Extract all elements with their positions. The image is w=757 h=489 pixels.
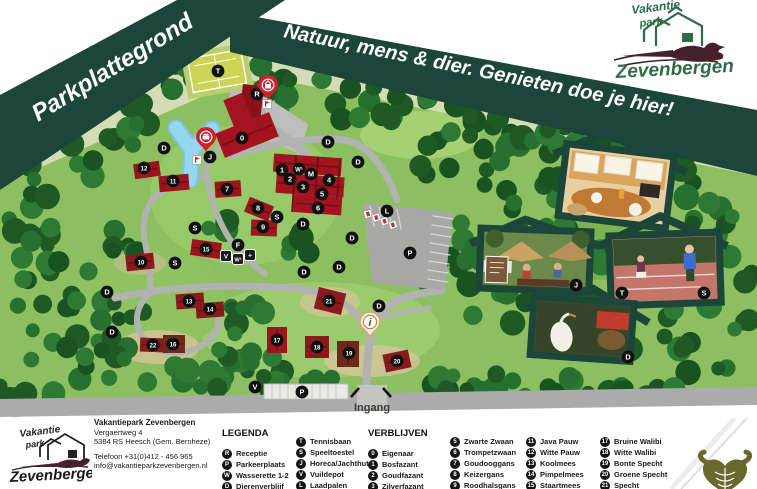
legend-key-badge: 21 bbox=[600, 481, 610, 489]
legend-key-badge: 6 bbox=[450, 448, 460, 458]
map-marker-D: D bbox=[297, 218, 310, 231]
svg-text:S: S bbox=[193, 224, 198, 233]
legend-label: Bosfazant bbox=[382, 460, 418, 469]
legend-key-badge: 3 bbox=[368, 482, 378, 489]
facility-square-V: V bbox=[221, 251, 232, 262]
map-marker-T: T bbox=[616, 287, 629, 300]
entrance-label: Ingang bbox=[354, 402, 390, 414]
svg-text:2: 2 bbox=[288, 175, 292, 184]
tree bbox=[409, 155, 431, 177]
tree bbox=[34, 184, 60, 210]
legend-label: Vuildepot bbox=[310, 470, 344, 479]
legend-item: LLaadpalen bbox=[296, 480, 369, 489]
tree bbox=[83, 150, 104, 171]
tree bbox=[48, 251, 69, 272]
map-marker-D: D bbox=[352, 156, 365, 169]
legend-item: DDierenverblijf bbox=[222, 481, 289, 489]
tree bbox=[462, 128, 478, 144]
tree bbox=[33, 295, 52, 314]
legend-key-badge: 1 bbox=[368, 460, 378, 470]
facility-square-W²: W² bbox=[233, 254, 244, 265]
tree bbox=[657, 329, 673, 345]
legend-item: 2Goudfazant bbox=[368, 470, 424, 481]
house-icon bbox=[40, 434, 84, 460]
legend-label: Trompetzwaan bbox=[464, 448, 516, 457]
legend-item: 0Eigenaar bbox=[368, 448, 424, 459]
legenda-col-2: TTennisbaanSSpeeltoestelJHoreca/Jachthut… bbox=[296, 436, 369, 489]
legend-label: Horeca/Jachthut bbox=[310, 459, 369, 468]
legend-item: 13Koolmees bbox=[526, 458, 584, 469]
svg-text:W¹: W¹ bbox=[295, 167, 303, 174]
map-marker-L: L bbox=[381, 205, 394, 218]
svg-text:3: 3 bbox=[301, 183, 305, 192]
svg-text:S: S bbox=[275, 213, 280, 222]
park-phone: Telefoon +31(0)412 - 456 965 bbox=[94, 452, 224, 462]
map-marker-4: 4 bbox=[323, 174, 336, 187]
map-marker-J: J bbox=[570, 279, 583, 292]
svg-text:R: R bbox=[254, 90, 260, 99]
map-marker-18: 18 bbox=[311, 341, 324, 354]
map-marker-22: 22 bbox=[147, 339, 160, 352]
park-email: info@vakantieparkzevenbergen.nl bbox=[94, 461, 224, 471]
tree bbox=[174, 358, 200, 384]
map-marker-17: 17 bbox=[271, 334, 284, 347]
svg-text:5: 5 bbox=[320, 190, 324, 199]
legend-key-badge: D bbox=[222, 482, 232, 489]
tree bbox=[10, 298, 26, 314]
map-marker-12: 12 bbox=[138, 162, 151, 175]
svg-text:V: V bbox=[224, 253, 229, 260]
legend-label: Zilverfazant bbox=[382, 482, 424, 489]
svg-text:7: 7 bbox=[225, 185, 229, 194]
tree bbox=[475, 139, 492, 156]
legend-key-badge: 17 bbox=[600, 437, 610, 447]
legend-label: Goudfazant bbox=[382, 471, 423, 480]
tree bbox=[418, 136, 438, 156]
tree bbox=[673, 341, 690, 358]
tree bbox=[462, 108, 478, 124]
tree bbox=[94, 342, 110, 358]
verblijven-col-2: 5Zwarte Zwaan6Trompetzwaan7Goudooggans8K… bbox=[450, 436, 516, 489]
legend-item: 11Java Pauw bbox=[526, 436, 584, 447]
map-marker-S: S bbox=[271, 211, 284, 224]
map-marker-19: 19 bbox=[343, 347, 356, 360]
svg-text:J: J bbox=[574, 281, 578, 290]
legend-key-badge: T bbox=[296, 437, 306, 447]
legend-key-badge: R bbox=[222, 449, 232, 459]
svg-text:D: D bbox=[104, 288, 110, 297]
tree bbox=[101, 370, 117, 386]
facility-square-+: + bbox=[245, 250, 256, 261]
tree bbox=[41, 218, 61, 238]
svg-text:V: V bbox=[253, 383, 258, 392]
tree bbox=[251, 301, 275, 325]
svg-text:21: 21 bbox=[326, 300, 333, 306]
tree bbox=[20, 231, 41, 252]
map-marker-8: 8 bbox=[252, 202, 265, 215]
svg-text:9: 9 bbox=[261, 223, 265, 232]
tree bbox=[23, 352, 39, 368]
legend-item: 3Zilverfazant bbox=[368, 481, 424, 489]
legend-key-badge: 15 bbox=[526, 481, 536, 489]
svg-text:D: D bbox=[625, 353, 631, 362]
svg-text:12: 12 bbox=[141, 167, 148, 173]
tree bbox=[201, 221, 216, 236]
legend-item: 6Trompetzwaan bbox=[450, 447, 516, 458]
tree bbox=[463, 306, 482, 325]
legend-key-badge: 7 bbox=[450, 459, 460, 469]
tree bbox=[40, 238, 54, 252]
legend-item: 8Keizergans bbox=[450, 469, 516, 480]
park-map-poster: Parkplattegrond Natuur, mens & dier. Gen… bbox=[0, 0, 757, 489]
legend-label: Roodhalsgans bbox=[464, 481, 516, 489]
legend-key-badge: 19 bbox=[600, 459, 610, 469]
map-marker-S: S bbox=[698, 287, 711, 300]
legend-key-badge: 12 bbox=[526, 448, 536, 458]
legend-label: Tennisbaan bbox=[310, 437, 351, 446]
park-name: Vakantiepark Zevenbergen bbox=[94, 418, 224, 428]
tree bbox=[559, 367, 580, 388]
legend-item: 1Bosfazant bbox=[368, 459, 424, 470]
map-marker-T: T bbox=[212, 65, 225, 78]
map-marker-14: 14 bbox=[204, 303, 217, 316]
tree bbox=[698, 192, 720, 214]
svg-text:6: 6 bbox=[316, 204, 320, 213]
legend-item: JHoreca/Jachthut bbox=[296, 458, 369, 469]
svg-text:F: F bbox=[236, 241, 241, 250]
svg-text:D: D bbox=[336, 263, 342, 272]
park-city: 5384 RS Heesch (Gem. Bernheze) bbox=[94, 437, 224, 447]
footer-bar: Vakantie park Zevenbergen Vakantiepark Z… bbox=[0, 418, 757, 489]
map-marker-11: 11 bbox=[167, 175, 180, 188]
map-marker-D: D bbox=[622, 351, 635, 364]
svg-text:S: S bbox=[702, 289, 707, 298]
legend-label: Keizergans bbox=[464, 470, 504, 479]
legend-key-badge: P bbox=[222, 460, 232, 470]
legend-item: WWasserette 1-2 bbox=[222, 470, 289, 481]
svg-text:D: D bbox=[376, 302, 382, 311]
svg-text:L: L bbox=[385, 207, 390, 216]
legend-key-badge: 8 bbox=[450, 470, 460, 480]
map-marker-D: D bbox=[298, 266, 311, 279]
tree bbox=[67, 291, 86, 310]
legend-key-badge: W bbox=[222, 471, 232, 481]
park-map: Parkplattegrond Natuur, mens & dier. Gen… bbox=[0, 0, 757, 420]
legend-item: 14Pimpelmees bbox=[526, 469, 584, 480]
legend-key-badge: 18 bbox=[600, 448, 610, 458]
tree bbox=[439, 158, 459, 178]
svg-text:D: D bbox=[325, 138, 331, 147]
legend-item: 15Staartmees bbox=[526, 480, 584, 489]
svg-text:S: S bbox=[173, 259, 178, 268]
legend-label: Java Pauw bbox=[540, 437, 578, 446]
svg-text:13: 13 bbox=[186, 300, 193, 306]
verblijven-title: VERBLIJVEN bbox=[368, 428, 428, 439]
map-marker-D: D bbox=[373, 300, 386, 313]
tree bbox=[487, 365, 505, 383]
map-marker-6: 6 bbox=[312, 202, 325, 215]
legend-label: Wasserette 1-2 bbox=[236, 471, 289, 480]
svg-text:D: D bbox=[349, 234, 355, 243]
tree bbox=[79, 262, 97, 280]
legend-item: SSpeeltoestel bbox=[296, 447, 369, 458]
legend-key-badge: L bbox=[296, 481, 306, 489]
map-marker-S: S bbox=[189, 222, 202, 235]
map-marker-20: 20 bbox=[391, 355, 404, 368]
map-marker-D: D bbox=[346, 232, 359, 245]
tree bbox=[441, 122, 461, 142]
svg-text:19: 19 bbox=[346, 352, 353, 358]
map-marker-J: J bbox=[204, 151, 217, 164]
map-marker-M: M bbox=[305, 168, 318, 181]
svg-text:D: D bbox=[109, 328, 115, 337]
legend-item: 9Roodhalsgans bbox=[450, 480, 516, 489]
address-block: Vakantiepark Zevenbergen Vergaertweg 4 5… bbox=[94, 418, 224, 471]
legend-label: Staartmees bbox=[540, 481, 580, 489]
legend-label: Pimpelmees bbox=[540, 470, 584, 479]
tree bbox=[504, 372, 521, 389]
map-marker-F: F bbox=[232, 239, 245, 252]
tree bbox=[282, 73, 297, 88]
tree bbox=[242, 353, 259, 370]
legend-label: Dierenverblijf bbox=[236, 482, 284, 489]
svg-text:D: D bbox=[161, 144, 167, 153]
svg-text:22: 22 bbox=[150, 344, 157, 350]
tree bbox=[500, 310, 525, 335]
legend-key-badge: 0 bbox=[368, 449, 378, 459]
tree bbox=[162, 79, 184, 101]
tree bbox=[727, 322, 742, 337]
tree bbox=[711, 362, 725, 376]
tree bbox=[538, 167, 559, 188]
legend-key-badge: S bbox=[296, 448, 306, 458]
map-marker-7: 7 bbox=[221, 183, 234, 196]
svg-text:T: T bbox=[216, 67, 221, 76]
map-marker-W¹: W¹ bbox=[293, 163, 306, 176]
svg-text:8: 8 bbox=[256, 204, 260, 213]
tree bbox=[371, 103, 395, 127]
legend-key-badge: J bbox=[296, 459, 306, 469]
svg-text:17: 17 bbox=[274, 339, 281, 345]
legend-label: Parkeerplaats bbox=[236, 460, 285, 469]
svg-text:14: 14 bbox=[207, 308, 214, 314]
tree bbox=[477, 177, 493, 193]
map-marker-V: V bbox=[249, 381, 262, 394]
legenda-title: LEGENDA bbox=[222, 428, 268, 439]
svg-text:J: J bbox=[208, 153, 212, 162]
map-marker-P: P bbox=[404, 247, 417, 260]
tree bbox=[674, 184, 700, 210]
svg-text:P: P bbox=[300, 388, 305, 397]
legend-key-badge: 9 bbox=[450, 481, 460, 489]
svg-text:1: 1 bbox=[280, 166, 284, 175]
svg-text:18: 18 bbox=[314, 346, 321, 352]
tree bbox=[211, 342, 227, 358]
legend-label: Eigenaar bbox=[382, 449, 414, 458]
legend-label: Koolmees bbox=[540, 459, 576, 468]
tree bbox=[506, 195, 523, 212]
map-marker-13: 13 bbox=[183, 295, 196, 308]
legend-key-badge: 2 bbox=[368, 471, 378, 481]
tree bbox=[725, 209, 740, 224]
legend-label: Speeltoestel bbox=[310, 448, 354, 457]
legend-key-badge: 11 bbox=[526, 437, 536, 447]
legend-key-badge: 5 bbox=[450, 437, 460, 447]
svg-text:15: 15 bbox=[203, 248, 210, 254]
legend-label: Laadpalen bbox=[310, 481, 347, 489]
legend-label: Goudooggans bbox=[464, 459, 515, 468]
map-marker-D: D bbox=[333, 261, 346, 274]
photo-terrace bbox=[469, 218, 601, 292]
verblijven-col-1: 0Eigenaar1Bosfazant2Goudfazant3Zilverfaz… bbox=[368, 448, 424, 489]
tree bbox=[446, 369, 460, 383]
tree bbox=[452, 215, 470, 233]
map-marker-21: 21 bbox=[323, 295, 336, 308]
map-marker-5: 5 bbox=[316, 188, 329, 201]
tree bbox=[236, 301, 251, 316]
tree bbox=[56, 336, 78, 358]
map-marker-16: 16 bbox=[167, 338, 180, 351]
verblijven-col-3: 11Java Pauw12Witte Pauw13Koolmees14Pimpe… bbox=[526, 436, 584, 489]
legend-item: 12Witte Pauw bbox=[526, 447, 584, 458]
tree bbox=[76, 347, 95, 366]
svg-text:M: M bbox=[308, 170, 314, 179]
legend-key-badge: 20 bbox=[600, 470, 610, 480]
map-marker-15: 15 bbox=[200, 243, 213, 256]
svg-text:W²: W² bbox=[235, 257, 242, 263]
tree bbox=[138, 372, 158, 392]
legend-key-badge: 13 bbox=[526, 459, 536, 469]
tree bbox=[27, 172, 42, 187]
svg-text:10: 10 bbox=[138, 261, 145, 267]
tree bbox=[105, 243, 121, 259]
map-marker-10: 10 bbox=[135, 256, 148, 269]
svg-text:D: D bbox=[301, 268, 307, 277]
legend-item: PParkeerplaats bbox=[222, 459, 289, 470]
map-marker-D: D bbox=[322, 136, 335, 149]
map-marker-0: 0 bbox=[236, 132, 249, 145]
tree bbox=[14, 270, 32, 288]
park-street: Vergaertweg 4 bbox=[94, 428, 224, 438]
svg-text:16: 16 bbox=[170, 343, 177, 349]
legenda-col-1: RReceptiePParkeerplaatsWWasserette 1-2DD… bbox=[222, 448, 289, 489]
legend-item: TTennisbaan bbox=[296, 436, 369, 447]
map-marker-D: D bbox=[158, 142, 171, 155]
map-marker-S: S bbox=[169, 257, 182, 270]
legend-label: Zwarte Zwaan bbox=[464, 437, 514, 446]
svg-text:20: 20 bbox=[394, 360, 401, 366]
corner-decoration bbox=[615, 418, 757, 489]
svg-text:D: D bbox=[300, 220, 306, 229]
tree bbox=[99, 128, 118, 147]
tree bbox=[207, 378, 227, 398]
legend-label: Witte Pauw bbox=[540, 448, 580, 457]
legend-label: Receptie bbox=[236, 449, 267, 458]
map-marker-D: D bbox=[106, 326, 119, 339]
map-marker-D: D bbox=[101, 286, 114, 299]
map-marker-3: 3 bbox=[297, 181, 310, 194]
legend-item: VVuildepot bbox=[296, 469, 369, 480]
svg-text:+: + bbox=[248, 252, 252, 259]
tree bbox=[733, 270, 757, 294]
tree bbox=[349, 107, 370, 128]
legend-item: 7Goudooggans bbox=[450, 458, 516, 469]
svg-text:0: 0 bbox=[240, 134, 244, 143]
tree bbox=[129, 116, 145, 132]
map-marker-P: P bbox=[296, 386, 309, 399]
tree bbox=[26, 323, 40, 337]
svg-text:D: D bbox=[355, 158, 361, 167]
legend-key-badge: 14 bbox=[526, 470, 536, 480]
legend-item: 5Zwarte Zwaan bbox=[450, 436, 516, 447]
map-marker-2: 2 bbox=[284, 173, 297, 186]
tree bbox=[227, 326, 242, 341]
legend-item: RReceptie bbox=[222, 448, 289, 459]
tree bbox=[116, 351, 131, 366]
svg-text:P: P bbox=[408, 249, 413, 258]
svg-text:11: 11 bbox=[170, 180, 177, 186]
brand-logo-bottom: Vakantie park Zevenbergen bbox=[4, 422, 92, 486]
legend-key-badge: V bbox=[296, 470, 306, 480]
map-marker-9: 9 bbox=[257, 221, 270, 234]
svg-text:T: T bbox=[620, 289, 625, 298]
horns-emblem bbox=[700, 452, 749, 489]
tree bbox=[125, 136, 142, 153]
